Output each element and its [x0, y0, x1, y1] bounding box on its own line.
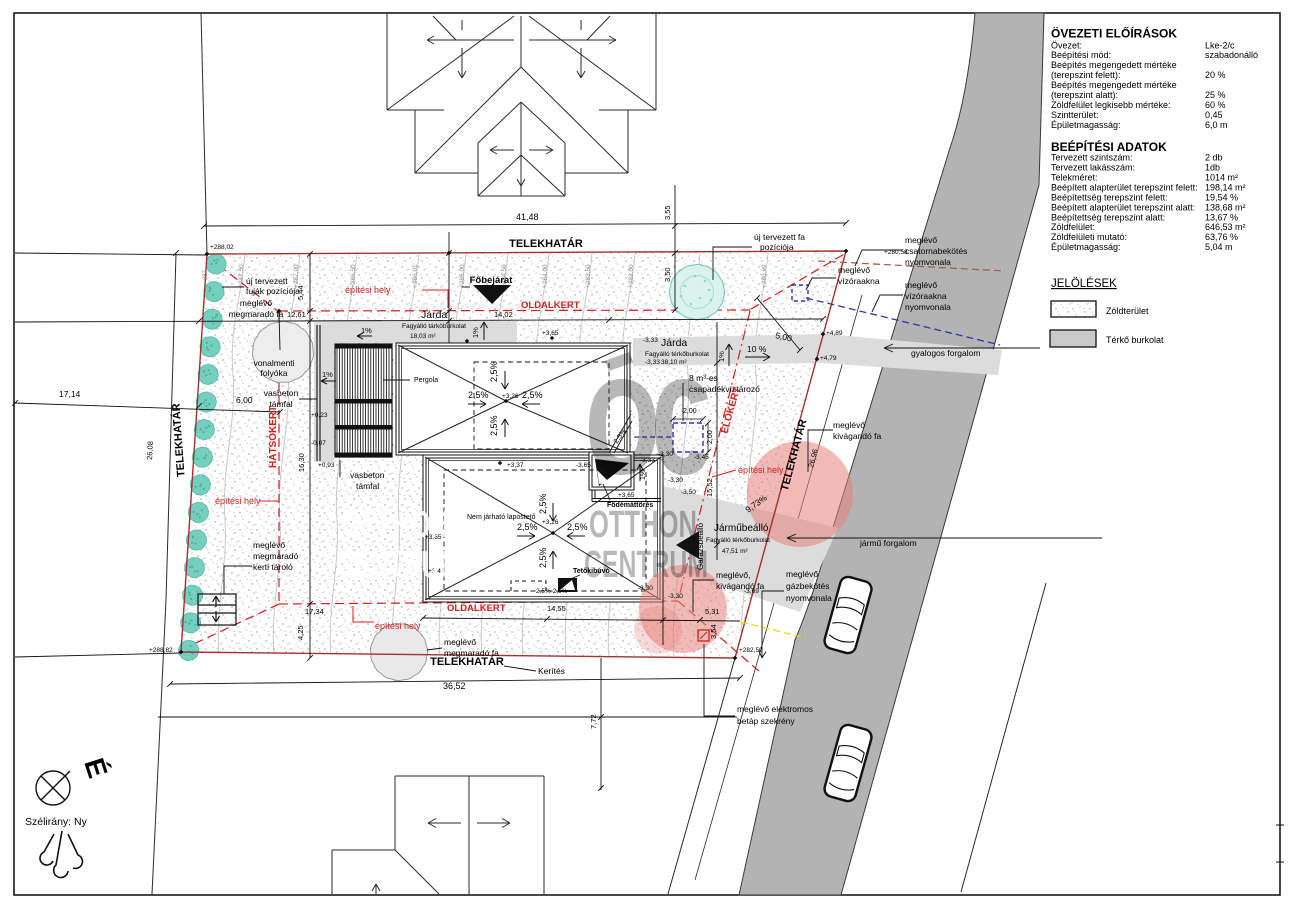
- svg-text:-3,33: -3,33: [643, 337, 658, 344]
- svg-text:Tervezett lakásszám:: Tervezett lakásszám:: [1051, 163, 1135, 173]
- svg-text:gázbekötés: gázbekötés: [786, 581, 829, 591]
- svg-text:36,52: 36,52: [443, 681, 466, 691]
- svg-text:1%: 1%: [640, 470, 647, 480]
- svg-text:Nem járható lapostető: Nem járható lapostető: [467, 514, 536, 521]
- svg-text:meglévő: meglévő: [905, 280, 937, 290]
- svg-text:Főbejárat: Főbejárat: [470, 275, 514, 286]
- svg-text:vasbeton: vasbeton: [350, 470, 385, 480]
- svg-text:Beépítettség terepszint alatt:: Beépítettség terepszint alatt:: [1051, 212, 1165, 222]
- svg-text:HÁTSÓKERT: HÁTSÓKERT: [266, 406, 279, 468]
- svg-text:Járda: Járda: [421, 309, 447, 321]
- svg-text:Pergola: Pergola: [414, 377, 438, 384]
- svg-text:Térkő burkolat: Térkő burkolat: [1106, 335, 1164, 345]
- svg-text:építési hely: építési hely: [738, 465, 784, 475]
- svg-text:OLDALKERT: OLDALKERT: [447, 603, 506, 614]
- svg-text:építési hely: építési hely: [375, 621, 421, 631]
- svg-text:15,52: 15,52: [705, 478, 714, 497]
- svg-text:138,68 m²: 138,68 m²: [1205, 202, 1246, 212]
- svg-text:kivágandó fa: kivágandó fa: [833, 431, 881, 441]
- svg-text:nyomvonala: nyomvonala: [905, 302, 951, 312]
- svg-text:+3,26: +3,26: [542, 519, 559, 526]
- svg-text:jármű forgalom: jármű forgalom: [859, 538, 917, 548]
- svg-text:Beépítési mód:: Beépítési mód:: [1051, 50, 1111, 60]
- svg-text:ÖVEZETI ELŐÍRÁSOK: ÖVEZETI ELŐÍRÁSOK: [1051, 26, 1177, 41]
- svg-text:Zöldterület: Zöldterület: [1106, 306, 1149, 316]
- svg-text:+280,99: +280,99: [761, 264, 768, 288]
- svg-text:+284,00: +284,00: [542, 264, 549, 288]
- svg-text:Beépítés megengedett mértéke: Beépítés megengedett mértéke: [1051, 60, 1177, 70]
- svg-text:Beépítés megengedett mértéke: Beépítés megengedett mértéke: [1051, 80, 1177, 90]
- svg-text:új tervezett fa: új tervezett fa: [754, 232, 805, 242]
- svg-text:Lke-2/c: Lke-2/c: [1205, 40, 1235, 50]
- svg-text:+286,01: +286,01: [412, 264, 419, 288]
- svg-text:+288,02: +288,02: [210, 244, 234, 251]
- svg-text:Fagyálló tárköburkolat: Fagyálló tárköburkolat: [402, 323, 466, 330]
- svg-text:+0,93: +0,93: [318, 462, 335, 469]
- svg-text:Övezet:: Övezet:: [1051, 40, 1082, 50]
- svg-text:meglévő: meglévő: [444, 637, 476, 647]
- svg-text:25 %: 25 %: [1205, 90, 1226, 100]
- svg-text:41,48: 41,48: [516, 212, 539, 222]
- svg-text:2,5%: 2,5%: [567, 522, 588, 532]
- svg-text:támfal: támfal: [356, 481, 379, 491]
- svg-text:nyomvonala: nyomvonala: [786, 593, 832, 603]
- svg-text:JELÖLÉSEK: JELÖLÉSEK: [1051, 277, 1117, 290]
- svg-text:CENTRUM: CENTRUM: [584, 544, 708, 586]
- svg-text:+288,82: +288,82: [149, 647, 173, 654]
- svg-text:646,53 m²: 646,53 m²: [1205, 222, 1246, 232]
- svg-text:+283,50: +283,50: [585, 264, 592, 288]
- svg-text:szabadonálló: szabadonálló: [1205, 50, 1258, 60]
- svg-text:287: 287: [203, 269, 209, 280]
- svg-text:Járda: Járda: [661, 337, 687, 349]
- svg-text:+4,89: +4,89: [826, 330, 843, 337]
- svg-text:-3,30: -3,30: [668, 477, 683, 484]
- svg-text:2,5%: 2,5%: [489, 361, 499, 382]
- svg-text:198,14 m²: 198,14 m²: [1205, 183, 1246, 193]
- svg-text:12,61: 12,61: [287, 310, 306, 319]
- svg-text:vízóraakna: vízóraakna: [905, 291, 947, 301]
- svg-text:építési hely: építési hely: [345, 285, 391, 295]
- svg-text:+4,79: +4,79: [820, 355, 837, 362]
- svg-text:-3,69: -3,69: [744, 588, 759, 595]
- svg-text:betáp szekrény: betáp szekrény: [737, 716, 795, 726]
- svg-text:TELEKHATÁR: TELEKHATÁR: [509, 237, 583, 250]
- svg-text:Beépített alapterület terepszi: Beépített alapterület terepszint felett:: [1051, 183, 1198, 193]
- svg-text:Zöldfelületi mutató:: Zöldfelületi mutató:: [1051, 232, 1127, 242]
- svg-text:13,67 %: 13,67 %: [1205, 212, 1238, 222]
- svg-text:2,5%: 2,5%: [517, 522, 538, 532]
- svg-text:18,03 m²: 18,03 m²: [410, 333, 436, 340]
- svg-text:vízóraakna: vízóraakna: [838, 276, 880, 286]
- svg-text:6,0 m: 6,0 m: [1205, 120, 1228, 130]
- svg-text:+282,50: +282,50: [739, 647, 763, 654]
- svg-text:1db: 1db: [1205, 163, 1220, 173]
- svg-text:+3,65: +3,65: [618, 492, 635, 499]
- svg-text:3,54: 3,54: [709, 624, 718, 639]
- svg-text:pozíciója: pozíciója: [760, 242, 794, 252]
- svg-text:építési hely: építési hely: [215, 496, 261, 506]
- svg-text:tuják pozíciója: tuják pozíciója: [246, 286, 300, 296]
- svg-text:17,34: 17,34: [305, 607, 324, 616]
- svg-text:megmaradó: megmaradó: [253, 551, 299, 561]
- svg-text:Beépítettség terepszint felett: Beépítettség terepszint felett:: [1051, 192, 1168, 202]
- svg-text:Épületmagasság:: Épületmagasság:: [1051, 242, 1121, 252]
- svg-text:Zöldfelület legkisebb mértéke:: Zöldfelület legkisebb mértéke:: [1051, 100, 1171, 110]
- svg-text:38,10 m²: 38,10 m²: [661, 359, 687, 366]
- svg-text:vonalmenti: vonalmenti: [253, 358, 294, 368]
- svg-text:16,30: 16,30: [297, 453, 306, 472]
- svg-text:2,5%: 2,5%: [489, 415, 499, 436]
- svg-text:1%: 1%: [717, 351, 726, 362]
- svg-text:+287,00: +287,00: [293, 264, 300, 288]
- svg-text:26,08: 26,08: [145, 441, 155, 460]
- svg-text:2 db: 2 db: [1205, 153, 1223, 163]
- svg-text:63,76 %: 63,76 %: [1205, 232, 1238, 242]
- svg-text:meglévő: meglévő: [838, 265, 870, 275]
- svg-text:17,14: 17,14: [59, 389, 81, 399]
- svg-text:+283,00: +283,00: [628, 264, 635, 288]
- svg-text:1%: 1%: [471, 327, 480, 338]
- svg-text:Kerítés: Kerítés: [538, 666, 565, 676]
- svg-text:vasbeton: vasbeton: [264, 388, 299, 398]
- svg-text:Fagyálló térkőburkolat: Fagyálló térkőburkolat: [706, 537, 770, 544]
- svg-text:6,00: 6,00: [236, 395, 253, 405]
- svg-text:Járműbeálló: Járműbeálló: [714, 523, 769, 534]
- svg-text:meglévő: meglévő: [240, 298, 272, 308]
- svg-text:csatornabekötés: csatornabekötés: [905, 246, 967, 256]
- svg-text:0,45: 0,45: [1205, 110, 1223, 120]
- svg-text:5,31: 5,31: [705, 607, 720, 616]
- svg-text:folyóka: folyóka: [261, 368, 288, 378]
- svg-text:meglévő: meglévő: [786, 569, 818, 579]
- svg-text:19,54 %: 19,54 %: [1205, 192, 1238, 202]
- svg-text:Fagyálló térkőburkolat: Fagyálló térkőburkolat: [645, 351, 709, 358]
- svg-text:Szélirány: Ny: Szélirány: Ny: [25, 816, 88, 828]
- svg-text:meglévő: meglévő: [905, 235, 937, 245]
- svg-text:7,72: 7,72: [589, 714, 598, 729]
- svg-text:2,00: 2,00: [683, 408, 697, 415]
- svg-text:2,5%: 2,5%: [522, 390, 543, 400]
- svg-text:megmaradó fa: megmaradó fa: [229, 309, 284, 319]
- svg-text:Telekméret:: Telekméret:: [1051, 173, 1098, 183]
- svg-text:3,55: 3,55: [663, 205, 672, 220]
- svg-text:2,5%: 2,5%: [468, 390, 489, 400]
- svg-text:Tervezett szintszám:: Tervezett szintszám:: [1051, 153, 1133, 163]
- svg-text:OTTHON: OTTHON: [341, 504, 449, 546]
- svg-text:+3,26: +3,26: [502, 393, 519, 400]
- svg-text:3,50: 3,50: [663, 267, 672, 282]
- svg-text:megmaradó fa: megmaradó fa: [444, 648, 499, 658]
- svg-text:meglévő elektromos: meglévő elektromos: [737, 704, 813, 714]
- svg-text:60 %: 60 %: [1205, 100, 1226, 110]
- svg-text:-3,65: -3,65: [576, 462, 591, 469]
- svg-text:OLDALKERT: OLDALKERT: [521, 300, 580, 311]
- svg-text:OTTHON: OTTHON: [589, 504, 697, 546]
- svg-text:+0,23: +0,23: [311, 412, 328, 419]
- svg-text:-3,30: -3,30: [668, 593, 683, 600]
- svg-text:2,5%: 2,5%: [538, 547, 548, 568]
- svg-text:meglévő,: meglévő,: [716, 570, 751, 580]
- svg-text:új tervezett: új tervezett: [246, 276, 288, 286]
- svg-text:nyomvonala: nyomvonala: [905, 257, 951, 267]
- svg-text:-3,50: -3,50: [681, 489, 696, 496]
- svg-text:20 %: 20 %: [1205, 70, 1226, 80]
- svg-text:2,5%: 2,5%: [538, 493, 548, 514]
- svg-text:5,04 m: 5,04 m: [1205, 242, 1233, 252]
- svg-text:kerti tároló: kerti tároló: [253, 562, 293, 572]
- svg-text:4,25: 4,25: [296, 625, 305, 640]
- svg-text:Zöldfelület:: Zöldfelület:: [1051, 222, 1095, 232]
- svg-text:1%: 1%: [322, 370, 333, 379]
- svg-text:Épületmagasság:: Épületmagasság:: [1051, 120, 1121, 130]
- svg-text:CENTRUM: CENTRUM: [336, 544, 460, 586]
- svg-text:-3,30: -3,30: [638, 585, 653, 592]
- svg-text:(terepszint alatt):: (terepszint alatt):: [1051, 90, 1118, 100]
- svg-text:14,02: 14,02: [494, 310, 513, 319]
- svg-text:47,51 m²: 47,51 m²: [722, 548, 748, 555]
- svg-text:+3,37: +3,37: [507, 462, 524, 469]
- svg-text:14,55: 14,55: [547, 604, 566, 613]
- svg-text:+3,65: +3,65: [542, 330, 559, 337]
- svg-text:(terepszint felett):: (terepszint felett):: [1051, 70, 1121, 80]
- svg-text:-3,33: -3,33: [645, 359, 660, 366]
- svg-text:1014 m²: 1014 m²: [1205, 173, 1238, 183]
- svg-text:meglévő: meglévő: [833, 420, 865, 430]
- svg-text:gyalogos forgalom: gyalogos forgalom: [911, 348, 980, 358]
- svg-text:+285,00: +285,00: [459, 264, 466, 288]
- svg-text:10 %: 10 %: [747, 344, 767, 354]
- svg-text:-0,07: -0,07: [311, 440, 326, 447]
- svg-text:Beépített alapterület terepszi: Beépített alapterület terepszint alatt:: [1051, 202, 1195, 212]
- svg-text:2,5% 2,5%: 2,5% 2,5%: [536, 588, 568, 595]
- svg-text:meglévő: meglévő: [253, 540, 285, 550]
- svg-text:Szintterület:: Szintterület:: [1051, 110, 1099, 120]
